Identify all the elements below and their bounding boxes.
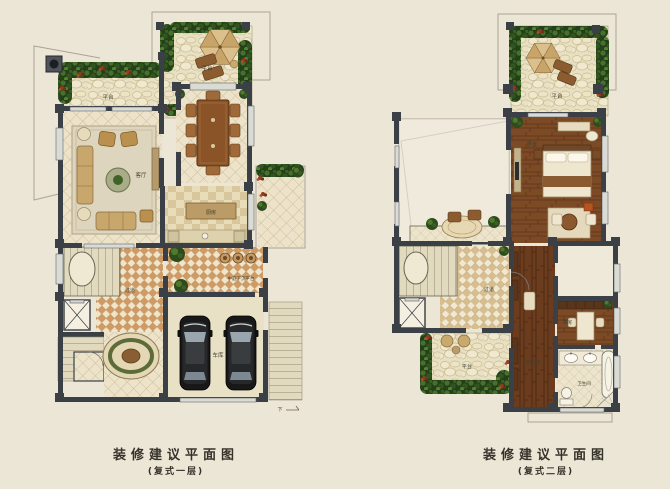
armchair (586, 131, 598, 141)
down-arrow (286, 406, 299, 410)
label-hallway: 过道 (484, 286, 494, 293)
label-hallway: 过道 (125, 287, 135, 294)
label-kitchen: 厨房 (206, 209, 216, 216)
floorplan-screenshot: 平台 平台 客厅 厨房 过道 中庭下沉平台 车库 下 (0, 0, 670, 489)
stove-icon (168, 231, 179, 242)
armchair (120, 131, 138, 147)
side-table (78, 208, 91, 221)
elevator-icon (399, 298, 425, 328)
car-icon (224, 316, 259, 390)
dining-chair (186, 144, 196, 157)
sofa (77, 146, 93, 204)
fridge-icon (234, 231, 245, 242)
label-bathroom: 卫生间 (577, 380, 591, 387)
second-floor-plan: 平台 卧室 过道 平台 主卧室 书房 卫生间 (392, 14, 620, 422)
bedroom (511, 116, 603, 243)
nightstand (592, 150, 601, 159)
first-floor-caption-block: 装修建议平面图 (复式一层) (41, 444, 311, 477)
wicker-chair (441, 335, 453, 347)
tea-table-set (548, 203, 596, 238)
dresser (558, 122, 590, 131)
foyer-lower (103, 332, 166, 400)
sink-icon (202, 233, 208, 239)
first-floor-caption: 装修建议平面图 (41, 444, 311, 463)
label-terrace-upper: 平台 (551, 92, 563, 100)
terrace-column (156, 22, 164, 30)
dining-chair (206, 91, 220, 100)
entry-steps (269, 302, 302, 400)
terrace (503, 22, 609, 116)
bathroom (557, 349, 615, 408)
first-floor-subcaption: (复式一层) (41, 464, 311, 477)
second-floor-subcaption: (复式二层) (411, 464, 670, 477)
dining-chair (206, 166, 220, 175)
label-bedroom: 卧室 (527, 141, 537, 148)
label-terrace-lower: 平台 (462, 363, 472, 370)
label-terrace-upper: 平台 (201, 64, 213, 72)
label-master-bedroom: 主卧室 (525, 359, 540, 366)
dining-table (197, 100, 229, 166)
balcony-chair (468, 210, 481, 220)
master-suite (511, 246, 555, 408)
label-sunken-courtyard: 中庭下沉平台 (228, 275, 255, 282)
staircase (399, 246, 457, 296)
staircase (64, 247, 120, 296)
sink-icon (565, 354, 578, 363)
label-study: 书房 (562, 319, 572, 326)
patio-table (452, 346, 460, 354)
upper-room (557, 246, 615, 296)
balcony-chair (448, 212, 461, 222)
wicker-chair (458, 335, 470, 347)
label-down-marker: 下 (277, 407, 282, 413)
planter-column (46, 56, 62, 72)
dining-chair (230, 144, 240, 157)
dining-chair (186, 124, 196, 137)
entry-stairs-lower (58, 332, 104, 381)
dining-chair (186, 104, 196, 117)
bench (524, 292, 535, 310)
stool (596, 318, 604, 327)
nightstand (534, 150, 542, 159)
armchair (140, 210, 153, 222)
side-table (78, 128, 91, 141)
car-icon (178, 316, 213, 390)
second-floor-caption: 装修建议平面图 (411, 444, 670, 463)
tv-cabinet (152, 148, 159, 190)
label-living-room: 客厅 (135, 171, 147, 179)
label-garage: 车库 (212, 351, 224, 359)
dining-chair (230, 104, 240, 117)
desk (577, 312, 594, 340)
sofa (96, 212, 136, 230)
terrace-column (242, 22, 250, 30)
dining-room (175, 89, 249, 183)
first-floor-plan: 平台 平台 客厅 厨房 过道 中庭下沉平台 车库 下 (34, 12, 305, 413)
elevator-icon (64, 300, 90, 330)
label-terrace-main: 平台 (102, 93, 114, 101)
sunken-courtyard (166, 246, 263, 293)
oval-rug (103, 333, 159, 379)
second-floor-caption-block: 装修建议平面图 (复式二层) (411, 444, 670, 477)
dining-chair (230, 124, 240, 137)
garage (166, 296, 264, 398)
living-room (63, 111, 162, 247)
side-garden (256, 164, 304, 247)
armchair (98, 131, 116, 147)
bed (543, 145, 591, 197)
sink-icon (584, 354, 597, 363)
floorplan-drawing: 平台 平台 客厅 厨房 过道 中庭下沉平台 车库 下 (0, 0, 670, 489)
